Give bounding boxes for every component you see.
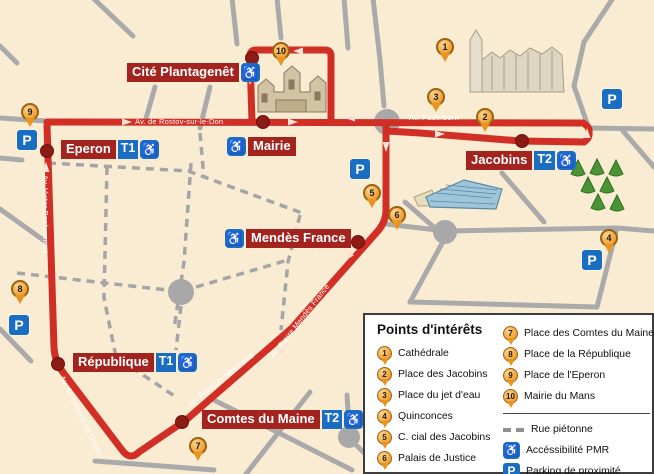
- poi-pin-icon: 1: [377, 346, 392, 361]
- pedestrian-street-icon: [503, 428, 525, 432]
- legend-item-label: Place des Jacobins: [398, 369, 488, 380]
- wheelchair-icon: ♿: [241, 63, 260, 82]
- legend-item-palais-de-justice: 6 Palais de Justice: [377, 451, 499, 466]
- legend-item-rue-pietonne: Rue piétonne: [503, 422, 653, 437]
- stop-dot-eperon: [41, 145, 54, 158]
- stop-dot-jacobins: [516, 135, 529, 148]
- parking-icon: P: [503, 463, 520, 474]
- junction-jacobins: [433, 220, 457, 244]
- stop-name: Cité Plantagenêt: [127, 63, 239, 82]
- poi-pin-icon: 6: [377, 451, 392, 466]
- stop-label-mendes-france: ♿ Mendès France: [225, 229, 351, 248]
- parking-icon-eperon: P: [17, 130, 37, 150]
- stop-dot-republique: [52, 358, 65, 371]
- city-map: Av. de Rostov-sur-le-Don Av. Paderborn A…: [0, 0, 654, 474]
- castle-illustration: [258, 66, 326, 112]
- stop-name: Comtes du Maine: [202, 410, 320, 429]
- legend-item-accessibilite-pmr: ♿ Accéssibilité PMR: [503, 443, 653, 458]
- legend-item-mairie-du-mans: 10 Mairie du Mans: [503, 389, 653, 404]
- stop-name: Eperon: [61, 140, 116, 159]
- legend-item-label: Palais de Justice: [398, 453, 476, 464]
- poi-pin-3: 3: [427, 88, 445, 106]
- legend-item-label: Place des Comtes du Maine: [524, 328, 654, 339]
- poi-pin-icon: 5: [377, 430, 392, 445]
- legend-column-left: 1 Cathédrale 2 Place des Jacobins 3 Plac…: [377, 346, 499, 466]
- wheelchair-icon: ♿: [557, 151, 576, 170]
- stop-dot-mairie: [257, 116, 270, 129]
- line-badge-t2: T2: [534, 151, 555, 170]
- legend-item-label: Parking de proximité: [526, 466, 621, 474]
- wheelchair-icon: ♿: [503, 442, 520, 459]
- legend-item-label: Place de la République: [524, 349, 631, 360]
- poi-pin-icon: 2: [377, 367, 392, 382]
- stop-dot-comtes: [176, 416, 189, 429]
- poi-pin-icon: 3: [377, 388, 392, 403]
- wheelchair-icon: ♿: [227, 137, 246, 156]
- stop-name: Jacobins: [466, 151, 532, 170]
- stop-label-comtes-du-maine: Comtes du Maine T2 ♿: [202, 410, 363, 429]
- parking-icon-northeast: P: [602, 89, 622, 109]
- legend-title: Points d'intérêts: [377, 322, 482, 337]
- legend-item-place-eperon: 9 Place de l'Eperon: [503, 368, 653, 383]
- legend-item-quinconces: 4 Quinconces: [377, 409, 499, 424]
- stop-label-eperon: Eperon T1 ♿: [61, 140, 159, 159]
- stop-dot-mendes: [352, 236, 365, 249]
- parking-icon-republique: P: [9, 315, 29, 335]
- poi-pin-icon: 8: [503, 347, 518, 362]
- line-badge-t2: T2: [322, 410, 343, 429]
- junction-south: [338, 426, 360, 448]
- line-badge-t1: T1: [156, 353, 177, 372]
- street-label-bonhommet: Av. Victor Bonhommet: [41, 175, 50, 253]
- legend-item-cathedrale: 1 Cathédrale: [377, 346, 499, 361]
- stop-name: République: [73, 353, 154, 372]
- legend-item-label: Accéssibilité PMR: [526, 445, 609, 456]
- legend-item-label: Mairie du Mans: [524, 391, 595, 402]
- poi-pin-4: 4: [600, 229, 618, 247]
- cathedral-illustration: [470, 30, 564, 92]
- legend-panel: Points d'intérêts 1 Cathédrale 2 Place d…: [363, 313, 654, 474]
- legend-item-label: Quinconces: [398, 411, 453, 422]
- wheelchair-icon: ♿: [140, 140, 159, 159]
- legend-separator: [503, 413, 650, 414]
- poi-pin-2: 2: [476, 108, 494, 126]
- stop-label-jacobins: Jacobins T2 ♿: [466, 151, 576, 170]
- stop-label-cite-plantagenet: Cité Plantagenêt ♿: [127, 63, 260, 82]
- stop-label-republique: République T1 ♿: [73, 353, 197, 372]
- legend-item-label: Place de l'Eperon: [524, 370, 605, 381]
- legend-item-jet-deau: 3 Place du jet d'eau: [377, 388, 499, 403]
- poi-pin-1: 1: [436, 38, 454, 56]
- legend-item-comtes-du-maine: 7 Place des Comtes du Maine: [503, 326, 653, 341]
- stop-name: Mairie: [248, 137, 296, 156]
- poi-pin-icon: 7: [503, 326, 518, 341]
- route-main-loop: [47, 125, 386, 456]
- poi-pin-9: 9: [21, 103, 39, 121]
- stop-name: Mendès France: [246, 229, 351, 248]
- legend-item-label: Rue piétonne: [531, 424, 593, 435]
- street-label-rostov: Av. de Rostov-sur-le-Don: [135, 117, 223, 126]
- poi-pin-5: 5: [363, 184, 381, 202]
- poi-pin-8: 8: [11, 280, 29, 298]
- legend-item-place-des-jacobins: 2 Place des Jacobins: [377, 367, 499, 382]
- wheelchair-icon: ♿: [225, 229, 244, 248]
- poi-pin-icon: 9: [503, 368, 518, 383]
- legend-item-parking-proximite: P Parking de proximité: [503, 464, 653, 474]
- wheelchair-icon: ♿: [344, 410, 363, 429]
- line-badge-t1: T1: [118, 140, 139, 159]
- legend-item-place-republique: 8 Place de la République: [503, 347, 653, 362]
- poi-pin-10: 10: [272, 42, 290, 60]
- poi-pin-6: 6: [388, 206, 406, 224]
- plaza-republique-area: [168, 279, 194, 305]
- stop-label-mairie: ♿ Mairie: [227, 137, 296, 156]
- legend-item-ccial-jacobins: 5 C. cial des Jacobins: [377, 430, 499, 445]
- legend-item-label: Place du jet d'eau: [398, 390, 480, 401]
- parking-icon-jacobins: P: [350, 159, 370, 179]
- poi-pin-icon: 4: [377, 409, 392, 424]
- wheelchair-icon: ♿: [178, 353, 197, 372]
- legend-item-label: C. cial des Jacobins: [398, 432, 490, 443]
- poi-pin-7: 7: [189, 437, 207, 455]
- trees: [571, 159, 624, 211]
- mall-illustration: [414, 180, 502, 209]
- parking-icon-quinconces: P: [582, 250, 602, 270]
- poi-pin-icon: 10: [503, 389, 518, 404]
- legend-item-label: Cathédrale: [398, 348, 449, 359]
- legend-column-right: 7 Place des Comtes du Maine 8 Place de l…: [503, 326, 653, 474]
